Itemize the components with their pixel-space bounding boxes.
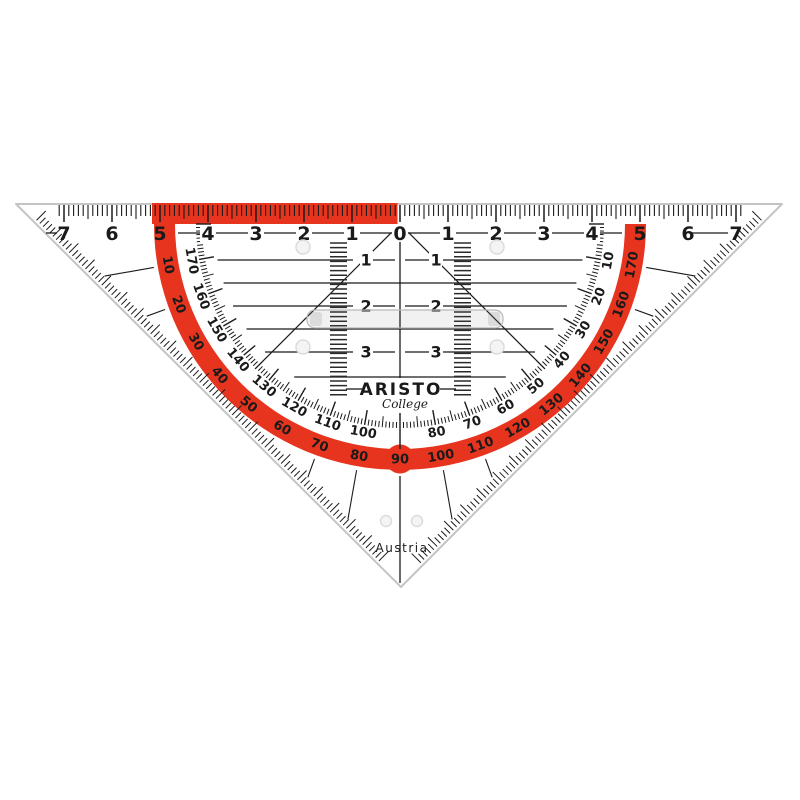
svg-text:1: 1	[345, 223, 358, 245]
svg-text:3: 3	[537, 223, 550, 245]
set-square-drawing: 1020304050607080901001101201301401501601…	[0, 0, 800, 800]
brand-series-label: College	[382, 397, 428, 411]
svg-text:3: 3	[249, 223, 262, 245]
svg-text:10: 10	[600, 251, 618, 271]
svg-text:6: 6	[105, 223, 118, 245]
svg-text:10: 10	[159, 255, 177, 275]
cm-ruler-scale: 765432101234567	[57, 205, 742, 245]
svg-text:7: 7	[57, 223, 70, 245]
svg-text:0: 0	[393, 223, 406, 245]
svg-text:1: 1	[360, 251, 371, 270]
svg-text:3: 3	[430, 343, 441, 362]
svg-text:6: 6	[681, 223, 694, 245]
svg-text:3: 3	[360, 343, 371, 362]
svg-text:1: 1	[441, 223, 454, 245]
svg-text:80: 80	[349, 447, 369, 465]
set-square-photo: 1020304050607080901001101201301401501601…	[0, 0, 800, 800]
svg-text:90: 90	[391, 453, 409, 468]
svg-text:5: 5	[633, 223, 646, 245]
svg-text:1: 1	[430, 251, 441, 270]
origin-label: Austria	[376, 541, 429, 555]
svg-text:4: 4	[585, 223, 598, 245]
svg-text:4: 4	[201, 223, 214, 245]
svg-text:5: 5	[153, 223, 166, 245]
svg-text:80: 80	[427, 424, 447, 442]
